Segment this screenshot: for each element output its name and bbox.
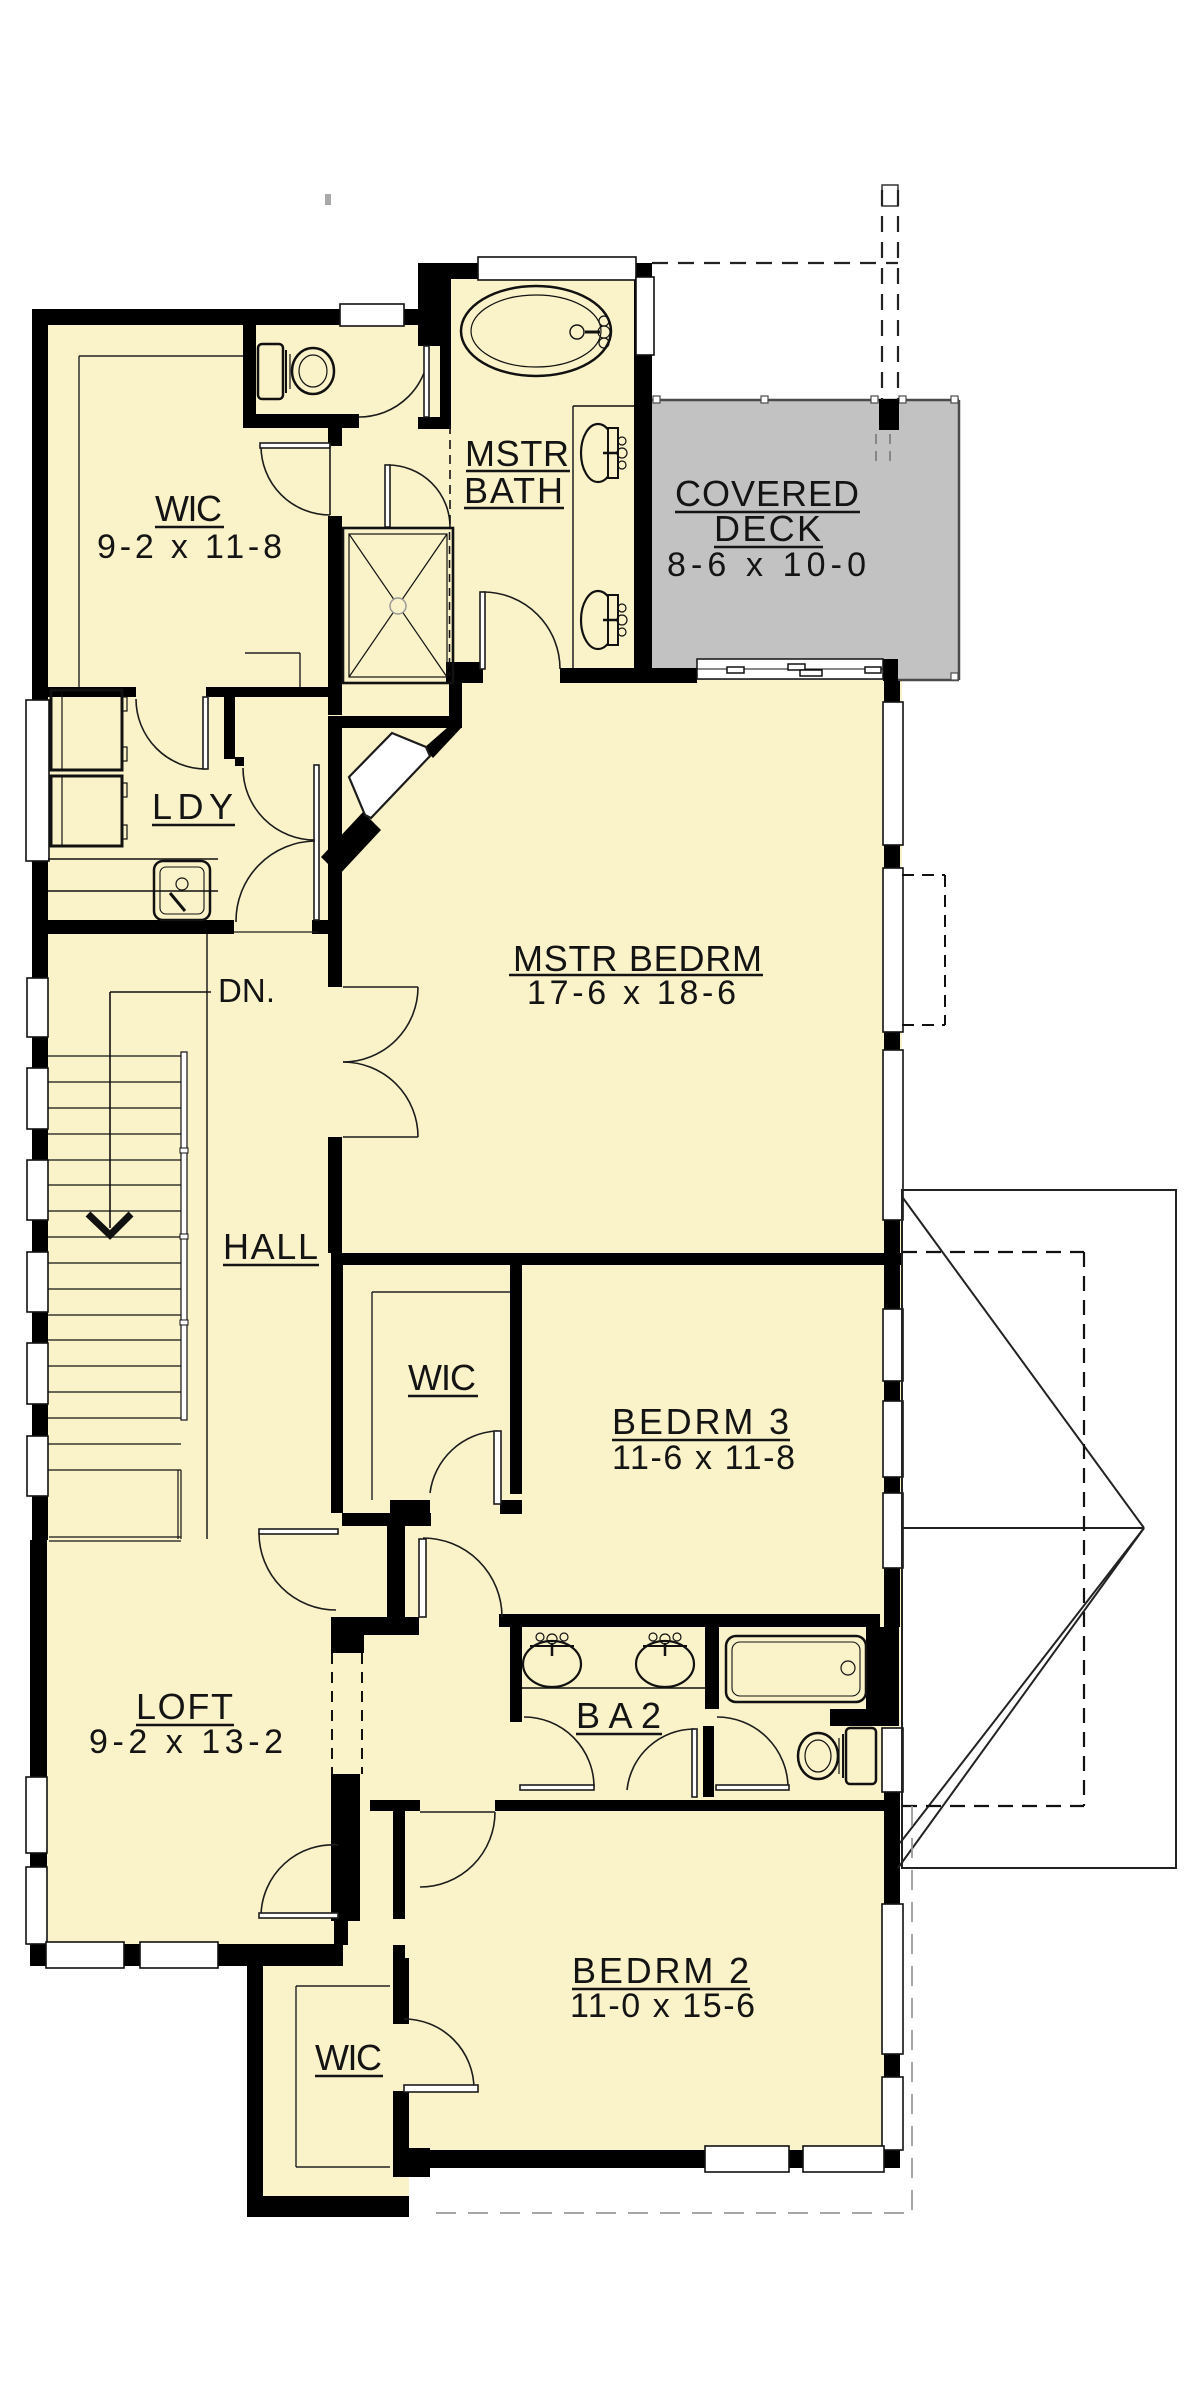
svg-text:LDY: LDY — [152, 786, 234, 827]
svg-text:DECK: DECK — [714, 508, 822, 549]
svg-text:MSTR: MSTR — [465, 433, 570, 474]
svg-text:BEDRM 3: BEDRM 3 — [612, 1401, 790, 1442]
svg-text:WIC: WIC — [315, 2037, 383, 2078]
svg-text:11-6 x 11-8: 11-6 x 11-8 — [612, 1439, 796, 1477]
svg-text:9-2 x 13-2: 9-2 x 13-2 — [89, 1723, 284, 1761]
svg-text:WIC: WIC — [408, 1357, 477, 1398]
svg-text:WIC: WIC — [155, 488, 223, 529]
svg-text:BATH: BATH — [464, 470, 564, 511]
svg-text:17-6 x 18-6: 17-6 x 18-6 — [527, 974, 737, 1012]
svg-text:11-0 x 15-6: 11-0 x 15-6 — [570, 1987, 756, 2025]
svg-text:MSTR BEDRM: MSTR BEDRM — [513, 938, 763, 979]
svg-text:BEDRM 2: BEDRM 2 — [572, 1950, 750, 1991]
svg-text:HALL: HALL — [223, 1226, 319, 1267]
svg-text:DN.: DN. — [218, 972, 276, 1009]
svg-text:LOFT: LOFT — [136, 1686, 234, 1727]
svg-text:COVERED: COVERED — [675, 473, 860, 514]
svg-text:BA2: BA2 — [576, 1695, 662, 1736]
